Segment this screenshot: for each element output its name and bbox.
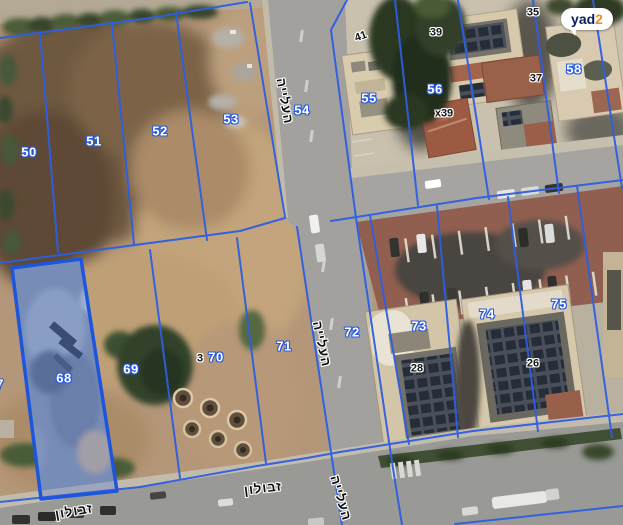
house-number-x39: x39	[435, 109, 453, 120]
parcel-label-51[interactable]: 51	[86, 135, 101, 148]
parcel-label-75[interactable]: 75	[551, 298, 566, 311]
house-number-28: 28	[411, 364, 423, 375]
parcel-label-54[interactable]: 54	[294, 104, 309, 117]
yad2-logo: yad2	[561, 8, 613, 30]
parcel-label-70[interactable]: 70	[208, 351, 223, 364]
house-number-26: 26	[527, 359, 539, 370]
parcel-label-67-partial[interactable]: 7	[0, 378, 4, 391]
parcel-label-55[interactable]: 55	[361, 92, 376, 105]
parcel-label-56[interactable]: 56	[427, 83, 442, 96]
yad2-logo-text: yad	[571, 11, 595, 27]
house-number-37: 37	[530, 74, 542, 85]
parcel-label-68[interactable]: 68	[56, 372, 71, 385]
house-number-39: 39	[430, 28, 442, 39]
parcel-label-69[interactable]: 69	[123, 363, 138, 376]
parcel-label-52[interactable]: 52	[152, 125, 167, 138]
parcel-label-72[interactable]: 72	[344, 326, 359, 339]
house-number-35: 35	[527, 8, 539, 19]
map-canvas[interactable]: 50 51 52 53 54 55 56 58 68 69 70 71 72 7…	[0, 0, 623, 525]
parcel-label-50[interactable]: 50	[21, 146, 36, 159]
yad2-logo-digit: 2	[595, 11, 603, 27]
parcel-label-58[interactable]: 58	[566, 63, 581, 76]
parcel-label-73[interactable]: 73	[411, 320, 426, 333]
parcel-label-74[interactable]: 74	[479, 308, 494, 321]
parcel-label-53[interactable]: 53	[223, 113, 238, 126]
parcel-label-71[interactable]: 71	[276, 340, 291, 353]
house-number-3: 3	[197, 354, 203, 365]
